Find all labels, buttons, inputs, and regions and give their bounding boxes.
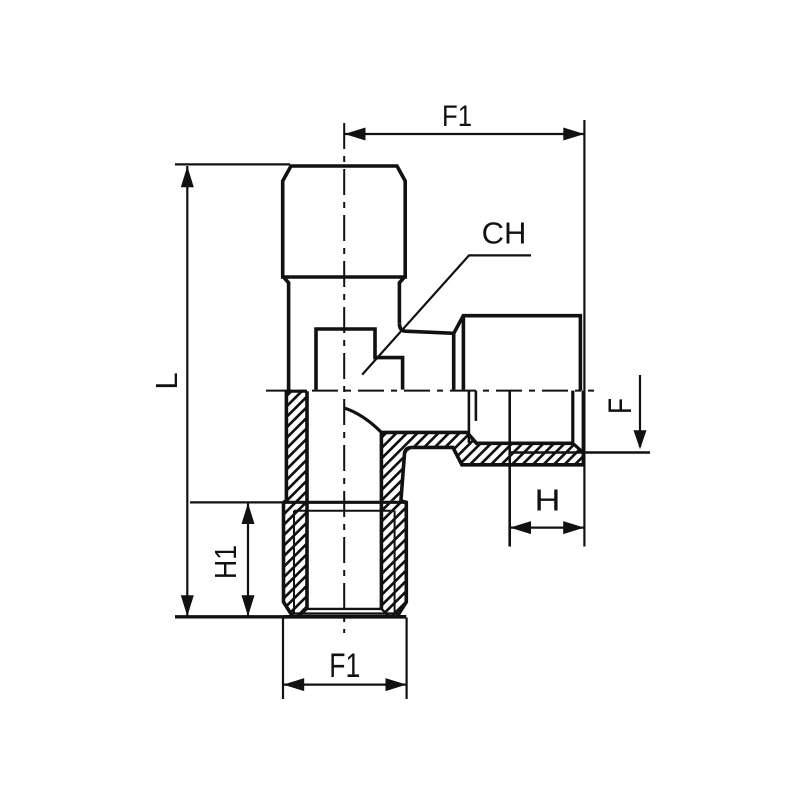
svg-text:CH: CH (482, 216, 527, 251)
svg-text:F1: F1 (442, 100, 472, 133)
svg-text:F1: F1 (329, 647, 360, 685)
svg-text:F: F (602, 398, 638, 414)
svg-text:H: H (535, 483, 561, 518)
svg-text:H1: H1 (208, 545, 243, 579)
svg-text:L: L (149, 372, 184, 389)
